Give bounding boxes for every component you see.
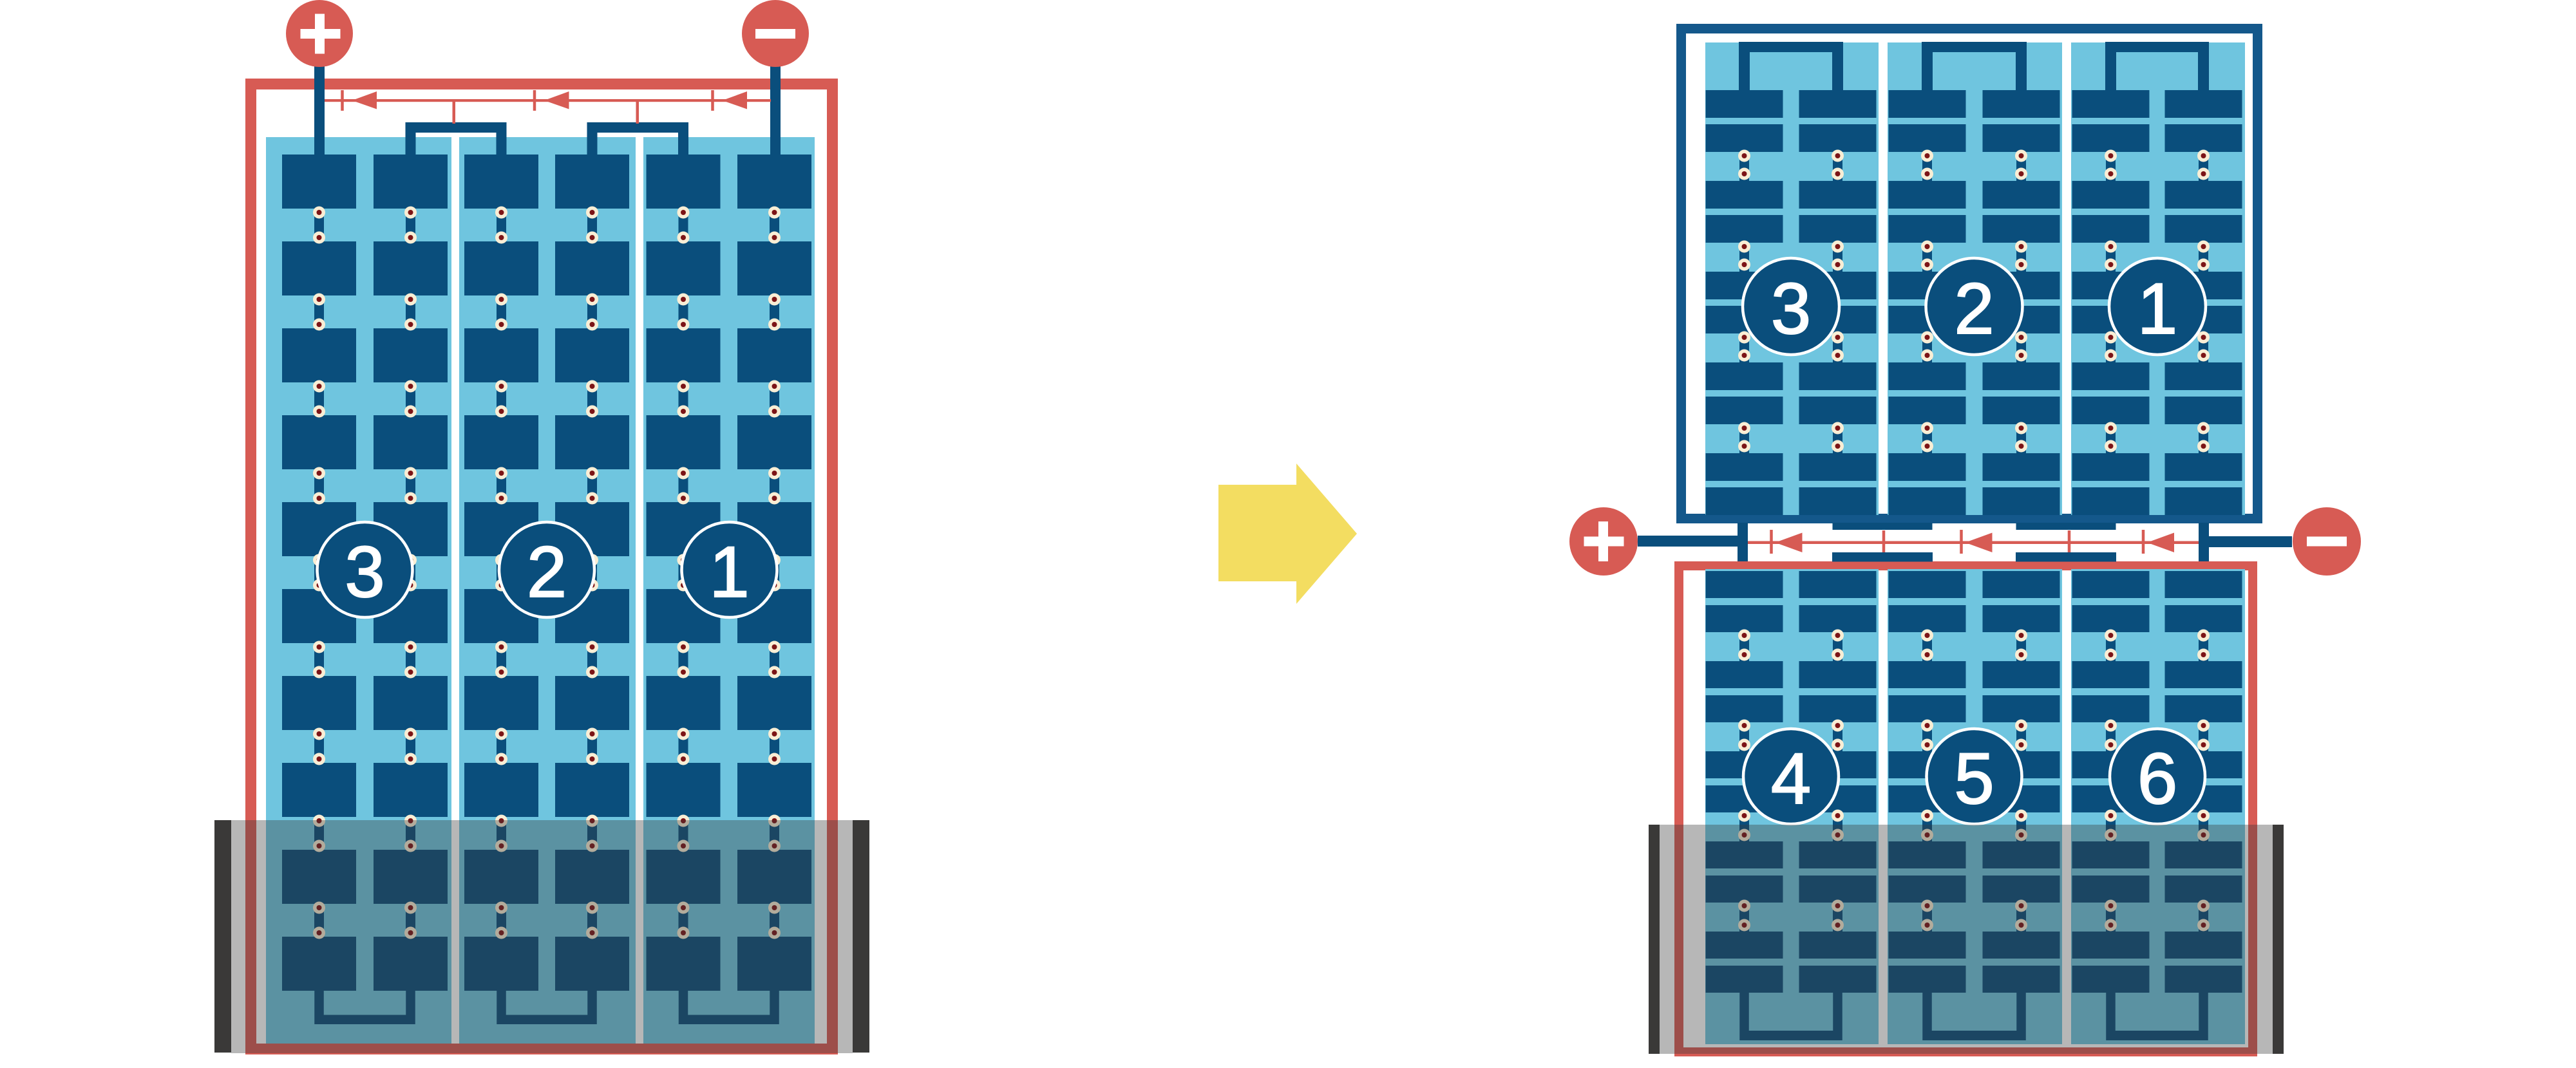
svg-text:6: 6 xyxy=(2137,738,2177,819)
svg-text:3: 3 xyxy=(345,532,384,612)
svg-text:5: 5 xyxy=(1954,738,1994,819)
svg-text:1: 1 xyxy=(709,532,749,612)
svg-text:4: 4 xyxy=(1771,738,1811,819)
svg-text:2: 2 xyxy=(527,532,567,612)
svg-text:2: 2 xyxy=(1954,268,1994,349)
svg-text:1: 1 xyxy=(2137,268,2177,349)
svg-text:3: 3 xyxy=(1771,268,1811,349)
